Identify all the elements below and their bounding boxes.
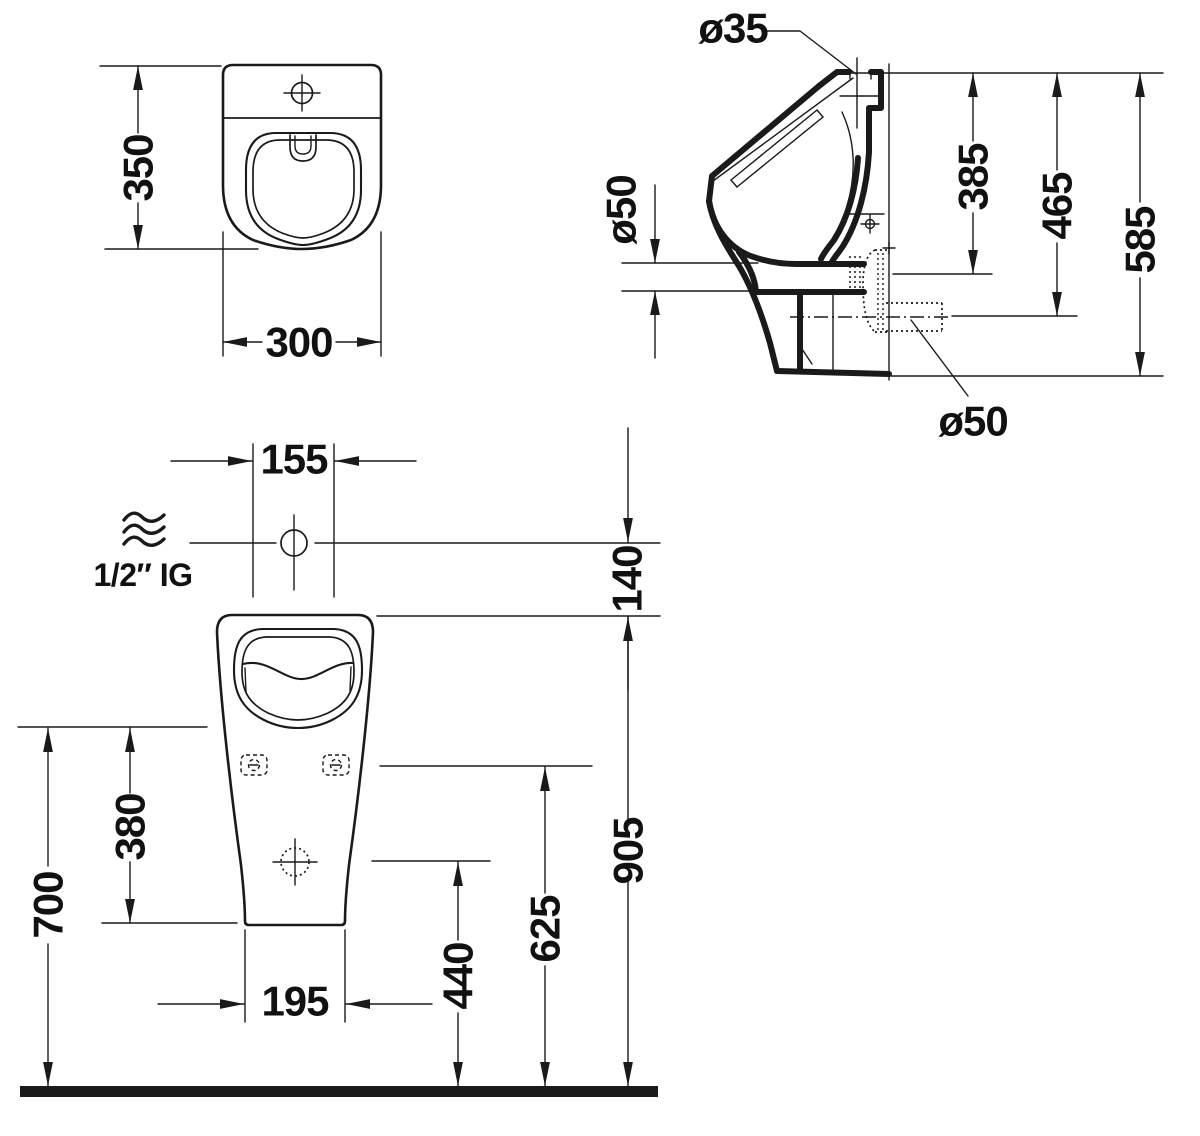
inlet-diameter-text: ø35 [698,5,768,52]
trap-diameter-text: ø50 [598,175,645,244]
dim-300: 300 [223,232,381,366]
dim-195: 195 [158,930,432,1025]
fixing-cross-icon [883,242,895,254]
top-view-bowl-outer [246,133,361,245]
dim-350-label: 350 [115,134,162,201]
dim-350: 350 [100,66,258,249]
dim-465-label: 465 [1034,172,1081,240]
dim-300-label: 300 [265,319,332,366]
dim-585-label: 585 [1117,206,1164,274]
dim-905-label: 905 [605,817,652,885]
water-supply-label: 1/2″ IG [94,557,193,593]
outlet-diameter-text: ø50 [938,398,1007,445]
dim-440-label: 440 [435,942,482,1009]
front-view: 1/2″ IG 155 140 905 625 [18,428,660,1097]
fixing-hole-right-icon [323,755,349,775]
supply-crosshair-icon [190,515,660,590]
dim-700: 700 [25,728,72,1086]
top-view: 350 300 [100,65,381,366]
fixing-hole-left-icon [241,755,267,775]
dim-140: 140 [377,428,660,690]
top-view-spout [290,135,316,161]
target-mark-icon [861,215,879,233]
dim-440: 440 [372,861,490,1086]
dim-905: 905 [605,617,652,1086]
top-view-bowl-inner [253,140,354,238]
dim-385-label: 385 [950,143,997,211]
dim-625: 625 [380,766,592,1086]
dim-625-label: 625 [522,895,569,963]
dim-140-label: 140 [604,545,651,612]
outlet-crosshair-icon [273,839,317,885]
floor-line [20,1086,658,1097]
inlet-crosshair-icon [284,75,320,111]
dim-155-label: 155 [260,436,328,483]
dim-195-label: 195 [261,978,329,1025]
side-view: ø35 ø50 ø50 385 465 [598,5,1164,445]
side-view-details [713,58,895,371]
label-outlet-diameter: ø50 [911,320,1008,445]
front-view-bowl-lip-curve [243,663,353,679]
technical-drawing: 350 300 [0,0,1200,1136]
urinal-technical-drawing-page: 350 300 [0,0,1200,1136]
label-inlet-diameter: ø35 [698,5,856,75]
dim-trap-diameter: ø50 [598,175,771,358]
dim-380-label: 380 [107,793,154,860]
water-supply-icon [124,513,164,545]
dim-700-label: 700 [25,871,72,938]
